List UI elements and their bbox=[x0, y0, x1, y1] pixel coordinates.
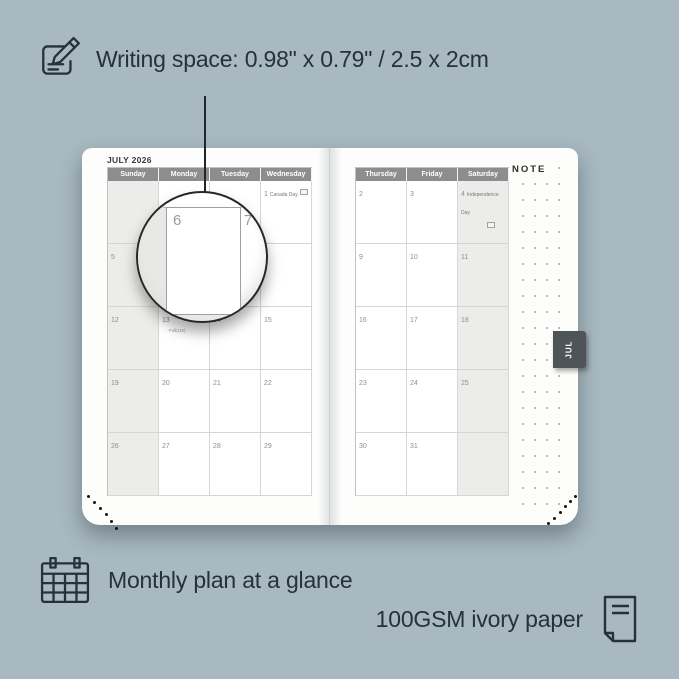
calendar-cell: 20 bbox=[159, 370, 210, 433]
stitch-dot bbox=[569, 500, 572, 503]
day-number: 23 bbox=[359, 380, 367, 387]
day-number: 1 bbox=[264, 191, 268, 198]
calendar-cell: 9 bbox=[356, 244, 407, 307]
day-number: 22 bbox=[264, 380, 272, 387]
calendar-right-page: ThursdayFridaySaturday234Independence Da… bbox=[355, 167, 509, 496]
holiday-note: Full(US) bbox=[169, 328, 208, 333]
calendar-cell: 10 bbox=[407, 244, 458, 307]
day-number: 25 bbox=[461, 380, 469, 387]
calendar-cell: 28 bbox=[210, 433, 261, 496]
day-number: 3 bbox=[410, 191, 414, 198]
calendar-cell: 24 bbox=[407, 370, 458, 433]
stitch-dot bbox=[87, 495, 90, 498]
holiday-label: Canada Day bbox=[270, 192, 298, 198]
stitch-dot bbox=[93, 501, 96, 504]
day-header: Wednesday bbox=[261, 168, 312, 181]
monthly-plan-label: Monthly plan at a glance bbox=[108, 567, 353, 594]
day-number: 17 bbox=[410, 317, 418, 324]
writing-space-annotation: Writing space: 0.98" x 0.79" / 2.5 x 2cm bbox=[37, 36, 489, 82]
note-label: NOTE bbox=[512, 164, 550, 177]
day-number: 27 bbox=[162, 443, 170, 450]
magnified-day-number: 6 bbox=[173, 212, 181, 229]
month-tab: JUL bbox=[553, 331, 586, 368]
calendar-cell: 26 bbox=[108, 433, 159, 496]
calendar-cell: 19 bbox=[108, 370, 159, 433]
callout-line bbox=[204, 96, 206, 195]
day-number: 30 bbox=[359, 443, 367, 450]
day-number: 12 bbox=[111, 317, 119, 324]
calendar-cell: 16 bbox=[356, 307, 407, 370]
monthly-plan-annotation: Monthly plan at a glance bbox=[40, 556, 353, 604]
stitch-dot bbox=[559, 511, 562, 514]
calendar-cell: 23 bbox=[356, 370, 407, 433]
day-header: Tuesday bbox=[210, 168, 261, 181]
calendar-grid-icon bbox=[40, 556, 90, 604]
paper-sheet-icon bbox=[598, 594, 642, 644]
stitch-dot bbox=[105, 513, 108, 516]
calendar-cell: 22 bbox=[261, 370, 312, 433]
holiday-label: Independence Day bbox=[461, 192, 499, 216]
calendar-cell: 25 bbox=[458, 370, 509, 433]
notepad-pencil-icon bbox=[37, 36, 83, 82]
magnified-weekend-shade bbox=[138, 193, 166, 321]
day-number: 5 bbox=[111, 254, 115, 261]
calendar-cell: 29 bbox=[261, 433, 312, 496]
month-tab-label: JUL bbox=[565, 340, 574, 358]
stitch-dot bbox=[564, 505, 567, 508]
day-number: 11 bbox=[461, 254, 468, 261]
day-number: 2 bbox=[359, 191, 363, 198]
day-header: Monday bbox=[159, 168, 210, 181]
flag-icon bbox=[487, 222, 495, 229]
day-number: 26 bbox=[111, 443, 119, 450]
day-header: Friday bbox=[407, 168, 458, 181]
day-number: 21 bbox=[213, 380, 221, 387]
calendar-cell: 3 bbox=[407, 181, 458, 244]
day-number: 20 bbox=[162, 380, 170, 387]
day-header: Thursday bbox=[356, 168, 407, 181]
page-seam-shadow bbox=[318, 148, 342, 525]
magnifier-circle: 6 7 bbox=[136, 191, 268, 323]
magnified-adjacent-day-number: 7 bbox=[244, 212, 252, 229]
day-header: Saturday bbox=[458, 168, 509, 181]
calendar-cell: 2 bbox=[356, 181, 407, 244]
stitch-dot bbox=[115, 527, 118, 530]
stitch-dot bbox=[553, 517, 556, 520]
calendar-cell: 11 bbox=[458, 244, 509, 307]
stitch-dot bbox=[110, 520, 113, 523]
writing-space-label: Writing space: 0.98" x 0.79" / 2.5 x 2cm bbox=[96, 46, 489, 73]
day-number: 4 bbox=[461, 191, 465, 198]
stitch-dot bbox=[547, 522, 550, 525]
day-number: 31 bbox=[410, 443, 418, 450]
day-number: 10 bbox=[410, 254, 418, 261]
day-number: 9 bbox=[359, 254, 363, 261]
calendar-cell: 31 bbox=[407, 433, 458, 496]
calendar-cell: 18 bbox=[458, 307, 509, 370]
calendar-cell: 17 bbox=[407, 307, 458, 370]
product-image: Writing space: 0.98" x 0.79" / 2.5 x 2cm… bbox=[0, 0, 679, 679]
day-number: 24 bbox=[410, 380, 418, 387]
day-number: 15 bbox=[264, 317, 272, 324]
calendar-cell bbox=[458, 433, 509, 496]
day-number: 28 bbox=[213, 443, 221, 450]
paper-annotation: 100GSM ivory paper bbox=[376, 594, 642, 644]
calendar-cell: 8 bbox=[261, 244, 312, 307]
calendar-cell: 21 bbox=[210, 370, 261, 433]
day-number: 29 bbox=[264, 443, 272, 450]
day-number: 19 bbox=[111, 380, 119, 387]
day-header: Sunday bbox=[108, 168, 159, 181]
calendar-cell: 27 bbox=[159, 433, 210, 496]
calendar-cell: 4Independence Day bbox=[458, 181, 509, 244]
stitch-dot bbox=[574, 495, 577, 498]
paper-label: 100GSM ivory paper bbox=[376, 606, 583, 633]
calendar-cell: 15 bbox=[261, 307, 312, 370]
calendar-cell: 1Canada Day bbox=[261, 181, 312, 244]
flag-icon bbox=[300, 189, 308, 196]
month-title: JULY 2026 bbox=[107, 155, 152, 165]
day-number: 18 bbox=[461, 317, 469, 324]
page-seam bbox=[329, 148, 330, 525]
stitch-dot bbox=[99, 507, 102, 510]
day-number: 16 bbox=[359, 317, 367, 324]
calendar-cell: 30 bbox=[356, 433, 407, 496]
